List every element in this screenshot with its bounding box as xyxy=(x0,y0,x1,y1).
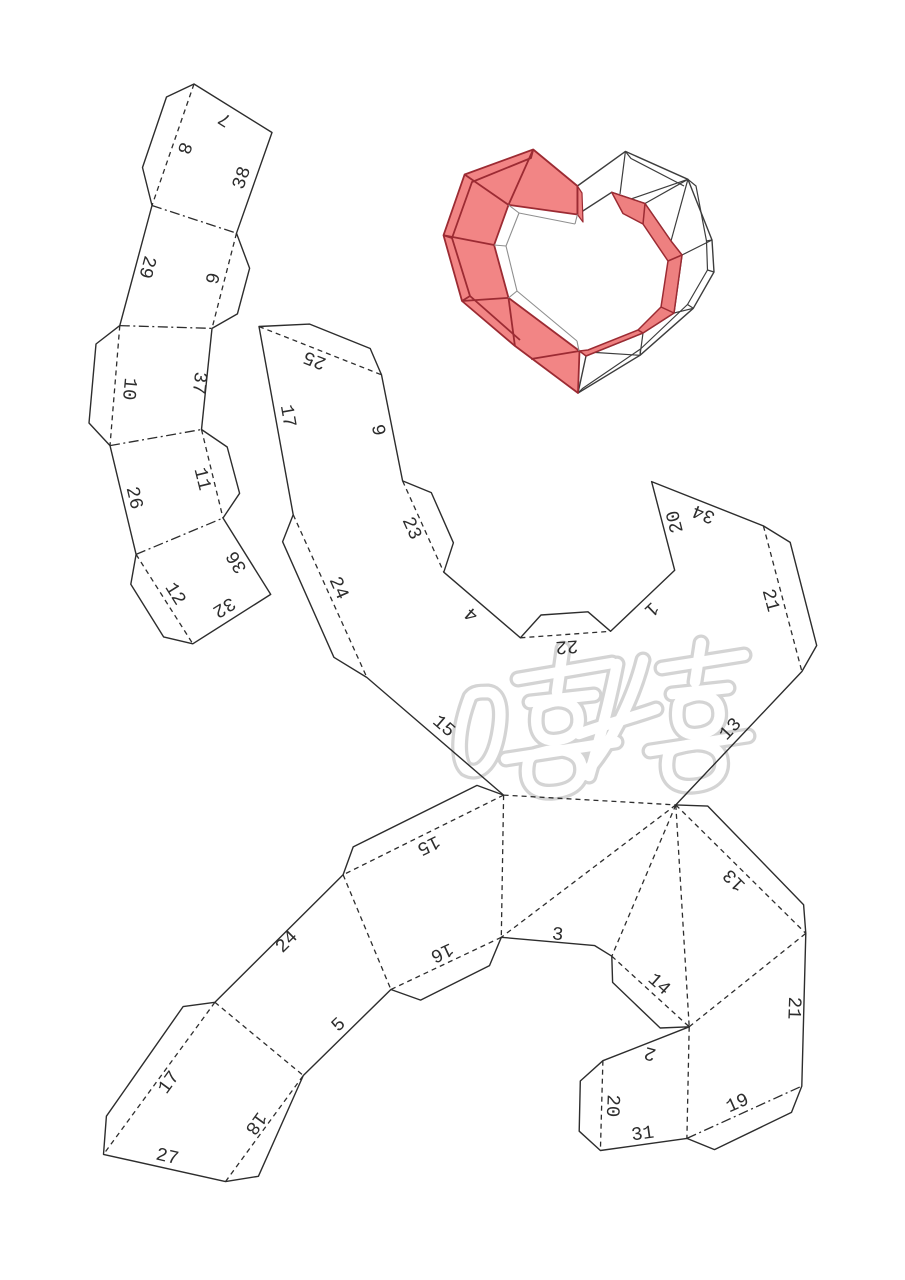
svg-text:21: 21 xyxy=(782,996,805,1020)
svg-text:3: 3 xyxy=(551,923,564,946)
svg-text:22: 22 xyxy=(555,634,579,658)
svg-text:31: 31 xyxy=(630,1122,656,1147)
svg-text:20: 20 xyxy=(601,1094,624,1118)
svg-text:37: 37 xyxy=(187,371,211,396)
svg-text:10: 10 xyxy=(117,377,141,402)
svg-text:17: 17 xyxy=(275,403,301,429)
